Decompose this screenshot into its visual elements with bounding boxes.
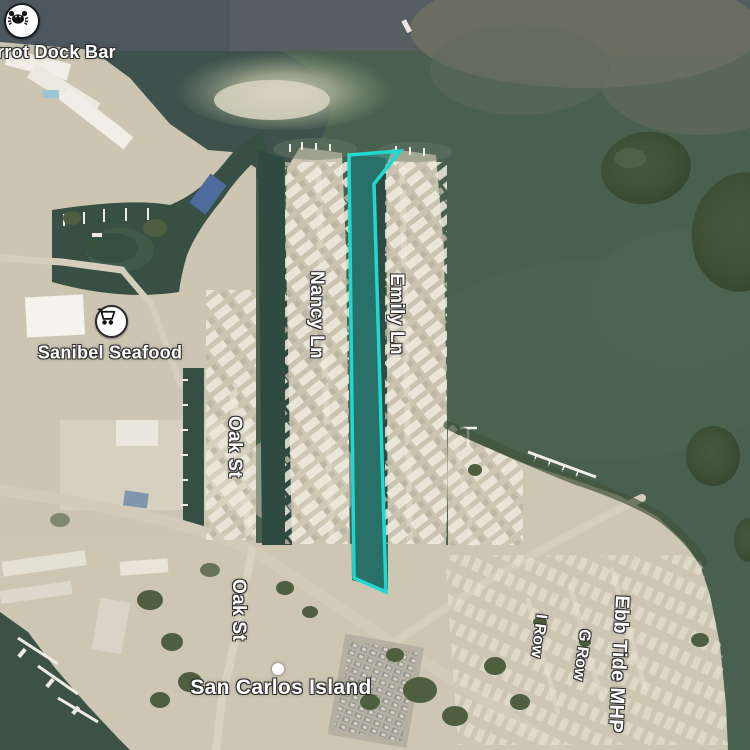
poi-label-sanibel-seafood[interactable]: Sanibel Seafood <box>38 343 183 364</box>
locality-dot-marker[interactable] <box>272 663 284 675</box>
crab-icon[interactable] <box>4 3 40 39</box>
shopping-cart-icon[interactable] <box>95 305 128 338</box>
place-label-san-carlos-island[interactable]: San Carlos Island <box>190 676 371 700</box>
poi-label-parrot-dock-bar[interactable]: rrot Dock Bar <box>0 42 116 63</box>
street-label-oak-st-north: Oak St <box>223 416 245 478</box>
street-label-nancy-ln: Nancy Ln <box>305 271 327 359</box>
satellite-imagery <box>0 0 750 750</box>
street-label-oak-st-south: Oak St <box>227 579 249 641</box>
satellite-map[interactable]: rrot Dock Bar Sanibel Seafood Nancy Ln E… <box>0 0 750 750</box>
street-label-emily-ln: Emily Ln <box>385 273 407 355</box>
